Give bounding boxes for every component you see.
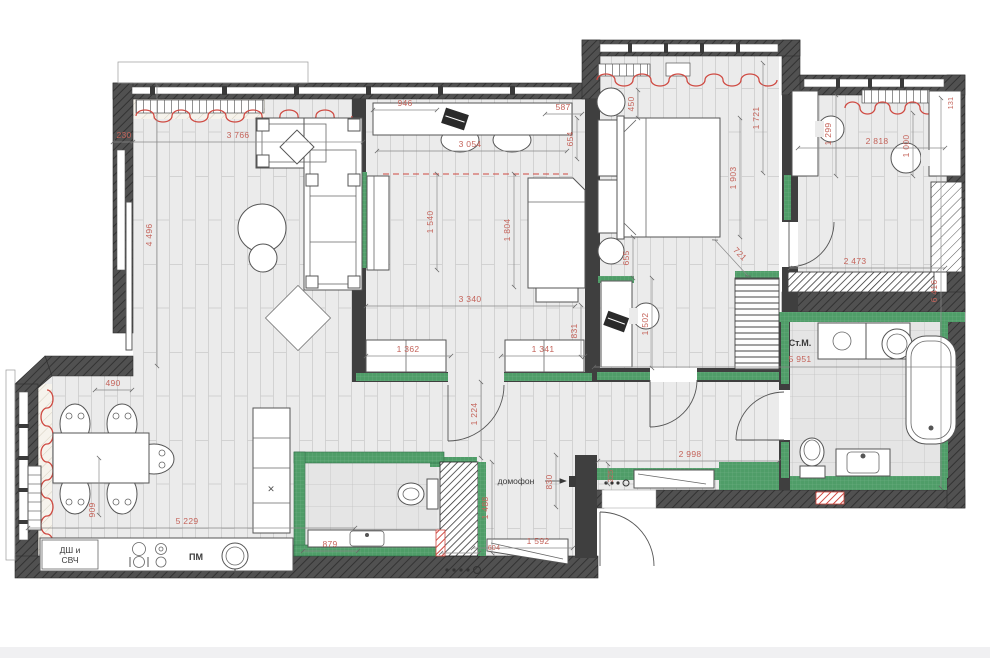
bathroom-vanity bbox=[836, 449, 890, 476]
dim-587: 587 bbox=[555, 102, 570, 112]
bedroom-window bbox=[600, 44, 778, 52]
vent-duct bbox=[440, 462, 478, 556]
dim-654: 654 bbox=[565, 131, 575, 146]
coffee-table-small bbox=[249, 244, 277, 272]
dim-490: 490 bbox=[105, 378, 120, 388]
dim-230: 230 bbox=[116, 130, 131, 140]
child-wardrobe bbox=[367, 176, 389, 270]
entry-threshold bbox=[602, 490, 656, 508]
child-bed bbox=[528, 178, 585, 288]
oven-microwave-label-1: ДШ и bbox=[60, 545, 81, 555]
dim-1502: 1 502 bbox=[640, 313, 650, 336]
bedroom-chair-opening bbox=[629, 308, 638, 324]
office-chair-right-opening bbox=[921, 150, 930, 166]
corridor-corner-green bbox=[719, 462, 779, 490]
office-wardrobe-bottom bbox=[788, 272, 934, 292]
dim-830: 830 bbox=[544, 474, 554, 489]
floor-plan-drawing: ДШ и СВЧ ПМ ✕ домофон bbox=[0, 0, 990, 658]
child-bed-drawer bbox=[536, 288, 578, 302]
dim-946: 946 bbox=[397, 98, 412, 108]
dim-325: 325 bbox=[608, 470, 615, 483]
bathtub-drain bbox=[929, 426, 934, 431]
cabinet-x-mark: ✕ bbox=[267, 484, 275, 494]
dim-5951: 5 951 bbox=[789, 354, 812, 364]
oven-microwave-label-2: СВЧ bbox=[61, 555, 78, 565]
bedroom-pouf-top bbox=[597, 88, 625, 116]
office-desk-left bbox=[792, 91, 818, 176]
left-ledge-outline bbox=[6, 370, 15, 560]
kitchen-window bbox=[19, 392, 28, 540]
dim-655: 655 bbox=[621, 250, 631, 265]
sofa-side-section bbox=[304, 118, 362, 290]
dim-450: 450 bbox=[626, 96, 636, 111]
dim-1903: 1 903 bbox=[728, 167, 738, 190]
kitchen-jog-wall bbox=[45, 356, 133, 376]
dim-831: 831 bbox=[569, 323, 579, 338]
bedroom-green-stub-right bbox=[735, 271, 779, 278]
kitchen-radiator-unit bbox=[28, 466, 41, 530]
dim-1488: 1 488 bbox=[480, 497, 490, 520]
bathroom-toilet-bowl bbox=[800, 438, 824, 466]
dishwasher-label: ПМ bbox=[189, 552, 203, 562]
office-wardrobe-right bbox=[931, 182, 962, 272]
bed-headboard bbox=[617, 116, 624, 239]
dim-1224: 1 224 bbox=[469, 403, 479, 426]
dim-604: 604 bbox=[488, 545, 501, 552]
wc-toilet-bowl bbox=[398, 483, 424, 505]
hall-wall-block bbox=[575, 455, 597, 558]
corridor-top-green-left bbox=[356, 373, 448, 381]
dim-1362: 1 362 bbox=[397, 344, 420, 354]
dim-1000: 1 000 bbox=[901, 135, 911, 158]
double-bed bbox=[624, 118, 720, 237]
office-radiator bbox=[862, 90, 930, 103]
bathroom-vent-marker bbox=[816, 492, 844, 504]
dim-1804: 1 804 bbox=[502, 219, 512, 242]
tv-panel bbox=[126, 202, 132, 350]
bedroom-bottom-green-left bbox=[597, 372, 650, 380]
intercom-device bbox=[569, 476, 576, 487]
dim-4496: 4 496 bbox=[144, 224, 154, 247]
dim-879: 879 bbox=[322, 539, 337, 549]
bedroom-bottom-green-right bbox=[697, 372, 779, 380]
dim-1540: 1 540 bbox=[425, 211, 435, 234]
wc-vent-marker bbox=[436, 530, 445, 556]
entry-door-arc bbox=[600, 512, 654, 566]
bathroom-left-green-upper bbox=[781, 322, 789, 384]
bathroom-left-green-lower bbox=[781, 442, 789, 478]
bedroom-left-step-wall bbox=[582, 40, 600, 99]
nightstand-bottom bbox=[598, 180, 617, 233]
dim-1721: 1 721 bbox=[751, 107, 761, 130]
office-left-green bbox=[784, 175, 791, 220]
dining-table bbox=[53, 433, 149, 483]
bathroom-toilet-tank bbox=[800, 466, 825, 478]
corridor-top-green-right bbox=[504, 373, 592, 381]
washing-machine bbox=[818, 323, 866, 359]
balcony-outline bbox=[118, 62, 308, 83]
dim-6416: 6 416 bbox=[929, 280, 939, 303]
living-radiator bbox=[136, 100, 264, 113]
dim-5229: 5 229 bbox=[176, 516, 199, 526]
dim-131: 131 bbox=[948, 97, 955, 110]
wc-toilet-tank bbox=[427, 479, 438, 509]
intercom-label: домофон bbox=[498, 476, 535, 486]
dim-3766: 3 766 bbox=[227, 130, 250, 140]
wc-top-green-wall bbox=[294, 452, 444, 463]
wc-left-green-wall bbox=[294, 452, 305, 556]
bottom-wall-right bbox=[656, 490, 965, 508]
nightstand-top bbox=[598, 120, 617, 176]
tall-cabinet-column bbox=[253, 408, 290, 533]
dim-1341: 1 341 bbox=[532, 344, 555, 354]
bedroom-wardrobe bbox=[735, 278, 779, 370]
dim-2998: 2 998 bbox=[679, 449, 702, 459]
office-window bbox=[804, 79, 944, 87]
dim-1299: 1 299 bbox=[823, 123, 833, 146]
dim-909: 909 bbox=[87, 502, 97, 517]
dim-1592: 1 592 bbox=[527, 536, 550, 546]
dim-3054: 3 054 bbox=[459, 139, 482, 149]
dim-2473: 2 473 bbox=[844, 256, 867, 266]
living-left-window bbox=[117, 150, 125, 270]
page-bottom-strip bbox=[0, 647, 990, 658]
washing-machine-label: Ст.М. bbox=[789, 338, 812, 348]
bathroom-top-green bbox=[779, 312, 965, 322]
facade-window bbox=[132, 87, 572, 94]
floor-plan-canvas: ДШ и СВЧ ПМ ✕ домофон bbox=[0, 0, 990, 658]
dim-3340: 3 340 bbox=[459, 294, 482, 304]
dim-2818: 2 818 bbox=[866, 136, 889, 146]
office-desk-right bbox=[929, 91, 961, 176]
